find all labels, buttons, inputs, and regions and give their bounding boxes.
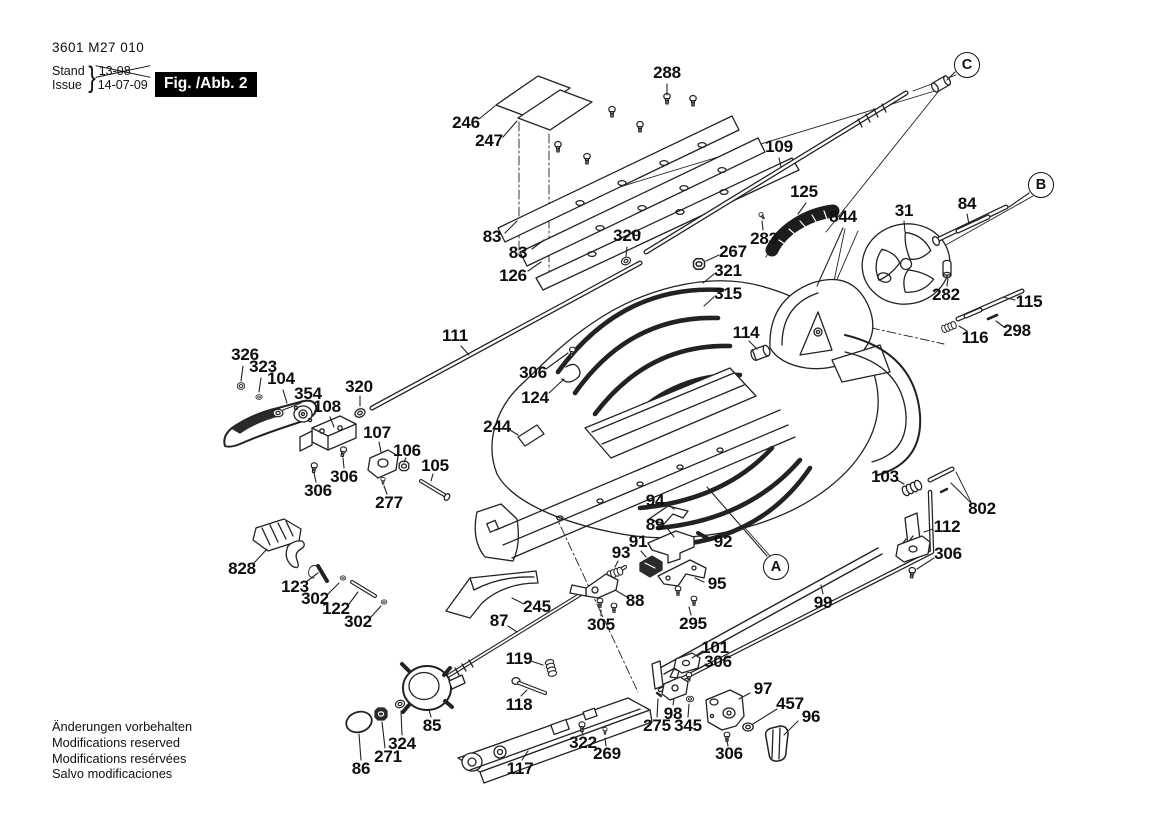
part-callout-277: 277 <box>375 493 403 513</box>
part-callout-282: 282 <box>932 285 960 305</box>
part-callout-320: 320 <box>613 226 641 246</box>
part-callout-87: 87 <box>490 611 509 631</box>
part-callout-124: 124 <box>521 388 549 408</box>
pin-122 <box>352 582 375 596</box>
part-callout-93: 93 <box>612 543 631 563</box>
part-callout-306: 306 <box>704 652 732 672</box>
nut-326 <box>238 383 245 389</box>
nut-271 <box>375 708 387 720</box>
washer-457 <box>743 723 753 731</box>
part-callout-288: 288 <box>653 63 681 83</box>
spring-119 <box>545 659 558 678</box>
view-ref-A: A <box>763 554 789 580</box>
part-callout-306: 306 <box>934 544 962 564</box>
part-callout-97: 97 <box>754 679 773 699</box>
exploded-view-drawing <box>0 0 1169 826</box>
part-callout-95: 95 <box>708 574 727 594</box>
washer-324 <box>394 699 405 709</box>
part-callout-116: 116 <box>962 328 989 348</box>
part-callout-305: 305 <box>587 615 615 635</box>
part-callout-83: 83 <box>483 227 502 247</box>
part-callout-112: 112 <box>934 517 961 537</box>
nut-267 <box>693 259 704 270</box>
part-callout-247: 247 <box>475 131 503 151</box>
washer-354 <box>273 409 283 417</box>
part-callout-31: 31 <box>895 201 914 221</box>
pin-105 <box>421 481 451 501</box>
lever-88 <box>570 574 618 598</box>
part-callout-267: 267 <box>719 242 747 262</box>
screw-295a <box>675 586 681 595</box>
part-callout-315: 315 <box>714 284 742 304</box>
part-callout-111: 111 <box>442 326 468 346</box>
part-callout-117: 117 <box>507 759 534 779</box>
part-callout-306: 306 <box>330 467 358 487</box>
screw-305b <box>611 603 617 612</box>
part-callout-802: 802 <box>968 499 996 519</box>
washer-302a <box>340 576 346 580</box>
pin-283 <box>758 212 765 220</box>
part-callout-844: 844 <box>829 207 857 227</box>
spring-116 <box>941 321 958 334</box>
part-callout-295: 295 <box>679 614 707 634</box>
sleeve-282 <box>943 260 951 277</box>
part-callout-103: 103 <box>871 467 899 487</box>
bushing-282c <box>930 75 952 93</box>
screw-306b <box>310 463 317 473</box>
part-callout-244: 244 <box>483 417 511 437</box>
kerf-plates <box>496 76 592 130</box>
block-91 <box>640 556 662 577</box>
part-callout-302: 302 <box>344 612 372 632</box>
part-callout-99: 99 <box>814 593 833 613</box>
screw-277 <box>381 477 385 484</box>
part-callout-271: 271 <box>374 747 402 767</box>
part-callout-86: 86 <box>352 759 371 779</box>
parts-diagram-page: 3601 M27 010 Stand Issue } 13-08 14-07-0… <box>0 0 1169 826</box>
spring-103 <box>901 479 923 496</box>
cap-86 <box>344 708 375 735</box>
turntable-base <box>475 279 920 561</box>
screw-306a <box>339 446 347 457</box>
part-callout-88: 88 <box>626 591 645 611</box>
part-callout-105: 105 <box>421 456 449 476</box>
part-callout-345: 345 <box>674 716 702 736</box>
part-callout-275: 275 <box>643 716 671 736</box>
part-callout-283: 283 <box>750 229 778 249</box>
part-callout-119: 119 <box>506 649 533 669</box>
part-callout-106: 106 <box>393 441 421 461</box>
part-callout-94: 94 <box>646 491 665 511</box>
part-callout-115: 115 <box>1016 292 1043 312</box>
part-callout-96: 96 <box>802 707 821 727</box>
part-callout-457: 457 <box>776 694 804 714</box>
part-callout-828: 828 <box>228 559 256 579</box>
part-callout-91: 91 <box>629 532 648 552</box>
part-callout-269: 269 <box>593 744 621 764</box>
washer-320 <box>620 256 632 266</box>
part-callout-114: 114 <box>733 323 760 343</box>
part-callout-85: 85 <box>423 716 442 736</box>
washer-323 <box>256 395 262 400</box>
washer-302b <box>381 600 387 604</box>
carriage-117 <box>458 659 652 783</box>
screw-306f <box>724 732 730 741</box>
plate-95 <box>658 560 706 586</box>
part-callout-306: 306 <box>519 363 547 383</box>
screw-306e <box>686 672 691 681</box>
knob-85-group <box>344 664 465 736</box>
nut-106 <box>399 461 409 470</box>
view-ref-C: C <box>954 52 980 78</box>
part-callout-108: 108 <box>313 397 341 417</box>
washer-320b <box>354 407 367 419</box>
part-callout-84: 84 <box>958 194 977 214</box>
pin-275 <box>657 693 661 696</box>
part-callout-306: 306 <box>715 744 743 764</box>
part-callout-298: 298 <box>1003 321 1031 341</box>
part-callout-109: 109 <box>765 137 793 157</box>
screw-295b <box>691 596 697 605</box>
part-callout-245: 245 <box>523 597 551 617</box>
part-callout-104: 104 <box>267 369 295 389</box>
part-callout-125: 125 <box>790 182 818 202</box>
part-callout-118: 118 <box>506 695 533 715</box>
part-callout-321: 321 <box>714 261 742 281</box>
screw-306d <box>908 567 916 578</box>
part-callout-107: 107 <box>363 423 391 443</box>
part-callout-320: 320 <box>345 377 373 397</box>
bracket-112 <box>896 513 930 562</box>
part-callout-246: 246 <box>452 113 480 133</box>
part-callout-92: 92 <box>714 532 733 552</box>
bracket-97 <box>706 690 744 730</box>
part-callout-306: 306 <box>304 481 332 501</box>
view-ref-B: B <box>1028 172 1054 198</box>
part-callout-126: 126 <box>499 266 527 286</box>
knob-96 <box>766 726 788 761</box>
screw-icon <box>609 107 615 117</box>
part-callout-83: 83 <box>509 243 528 263</box>
part-callout-89: 89 <box>646 515 665 535</box>
bolt-118 <box>512 678 545 693</box>
washer-345 <box>686 696 693 702</box>
